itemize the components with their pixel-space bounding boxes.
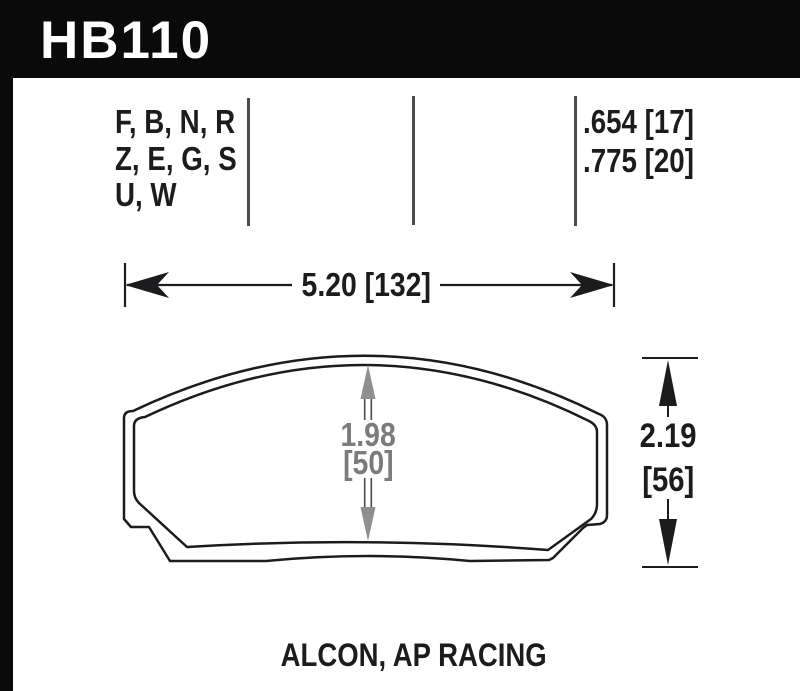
overall-height-up-arrowhead	[659, 360, 677, 406]
catalog-page: HB110 F, B, N, R Z, E, G, S U, W .654 [1…	[0, 0, 800, 691]
overall-height-mm: [56]	[598, 458, 738, 502]
applications-text: ALCON, AP RACING	[281, 637, 547, 674]
pad-height-mm: [50]	[288, 449, 448, 477]
pad-height-up-arrowhead	[361, 365, 376, 399]
overall-height-label: 2.19 [56]	[598, 414, 738, 502]
overall-height-down-arrowhead	[659, 519, 677, 565]
width-dimension-label: 5.20 [132]	[246, 266, 486, 304]
pad-height-down-arrowhead	[361, 507, 376, 541]
technical-drawing	[0, 0, 800, 691]
overall-height-inches: 2.19	[598, 414, 738, 458]
width-dimension-value: 5.20 [132]	[301, 266, 430, 304]
applications-label: ALCON, AP RACING	[254, 637, 574, 674]
pad-height-label: 1.98 [50]	[288, 421, 448, 477]
